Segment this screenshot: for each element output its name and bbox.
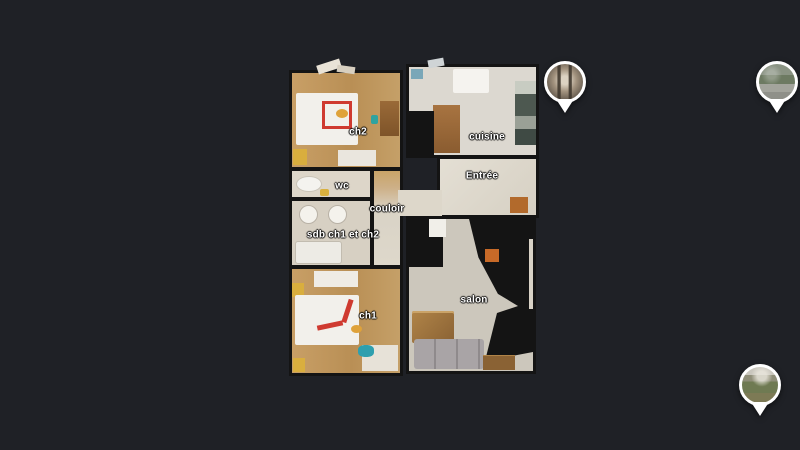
shelf	[314, 271, 358, 287]
wall-fragment	[529, 239, 533, 309]
marker-photo-thumbnail	[756, 61, 798, 103]
fridge	[453, 69, 489, 93]
sofa	[414, 339, 484, 369]
kitchen-object	[411, 69, 423, 79]
entry-cabinet	[510, 197, 528, 213]
wood-desk	[380, 101, 399, 136]
marker-pin-tail-icon	[768, 99, 786, 113]
dresser	[338, 150, 376, 166]
room-ch1[interactable]	[289, 266, 403, 376]
chair	[358, 345, 374, 357]
kitchen-shelf	[433, 105, 460, 153]
unscanned-area	[409, 111, 434, 155]
room-label-sdb: sdb ch1 et ch2	[307, 230, 379, 241]
marker-pin-tail-icon	[556, 99, 574, 113]
room-ch2[interactable]	[289, 70, 403, 170]
room-label-ch1: ch1	[359, 311, 377, 322]
kitchen-counter	[515, 81, 536, 145]
bin	[320, 189, 329, 196]
marker-photo-thumbnail	[739, 364, 781, 406]
photo-marker-pin-garden[interactable]	[739, 364, 781, 420]
bed	[295, 295, 359, 345]
sink	[328, 205, 347, 224]
room-label-entree: Entrée	[466, 171, 498, 182]
room-label-cuisine: cuisine	[469, 132, 505, 143]
room-label-wc: wc	[335, 181, 349, 192]
room-label-salon: salon	[460, 295, 487, 306]
sink	[299, 205, 318, 224]
armchair	[485, 249, 499, 262]
toilet	[296, 176, 322, 192]
bed-amber-object	[351, 325, 362, 333]
coffee-table	[483, 355, 515, 370]
room-label-ch2: ch2	[349, 127, 367, 138]
floorplan-viewer-stage: ch2 wc couloir sdb ch1 et ch2 ch1 cuisin…	[0, 0, 800, 450]
bed-red-object	[317, 320, 343, 330]
photo-marker-pin-interior[interactable]	[544, 61, 586, 117]
room-wc[interactable]	[289, 168, 373, 200]
photo-marker-pin-street[interactable]	[756, 61, 798, 117]
wardrobe	[293, 149, 307, 165]
chair	[371, 115, 378, 124]
bed-amber-object	[336, 109, 348, 118]
bathtub	[295, 241, 342, 264]
side-table	[429, 219, 446, 237]
bed-red-object	[341, 299, 353, 323]
marker-photo-thumbnail	[544, 61, 586, 103]
marker-pin-tail-icon	[751, 402, 769, 416]
room-label-couloir: couloir	[370, 204, 405, 215]
room-entree[interactable]	[437, 156, 539, 218]
room-cuisine[interactable]	[406, 64, 539, 158]
room-couloir[interactable]	[371, 168, 403, 268]
cabinet	[293, 358, 305, 372]
